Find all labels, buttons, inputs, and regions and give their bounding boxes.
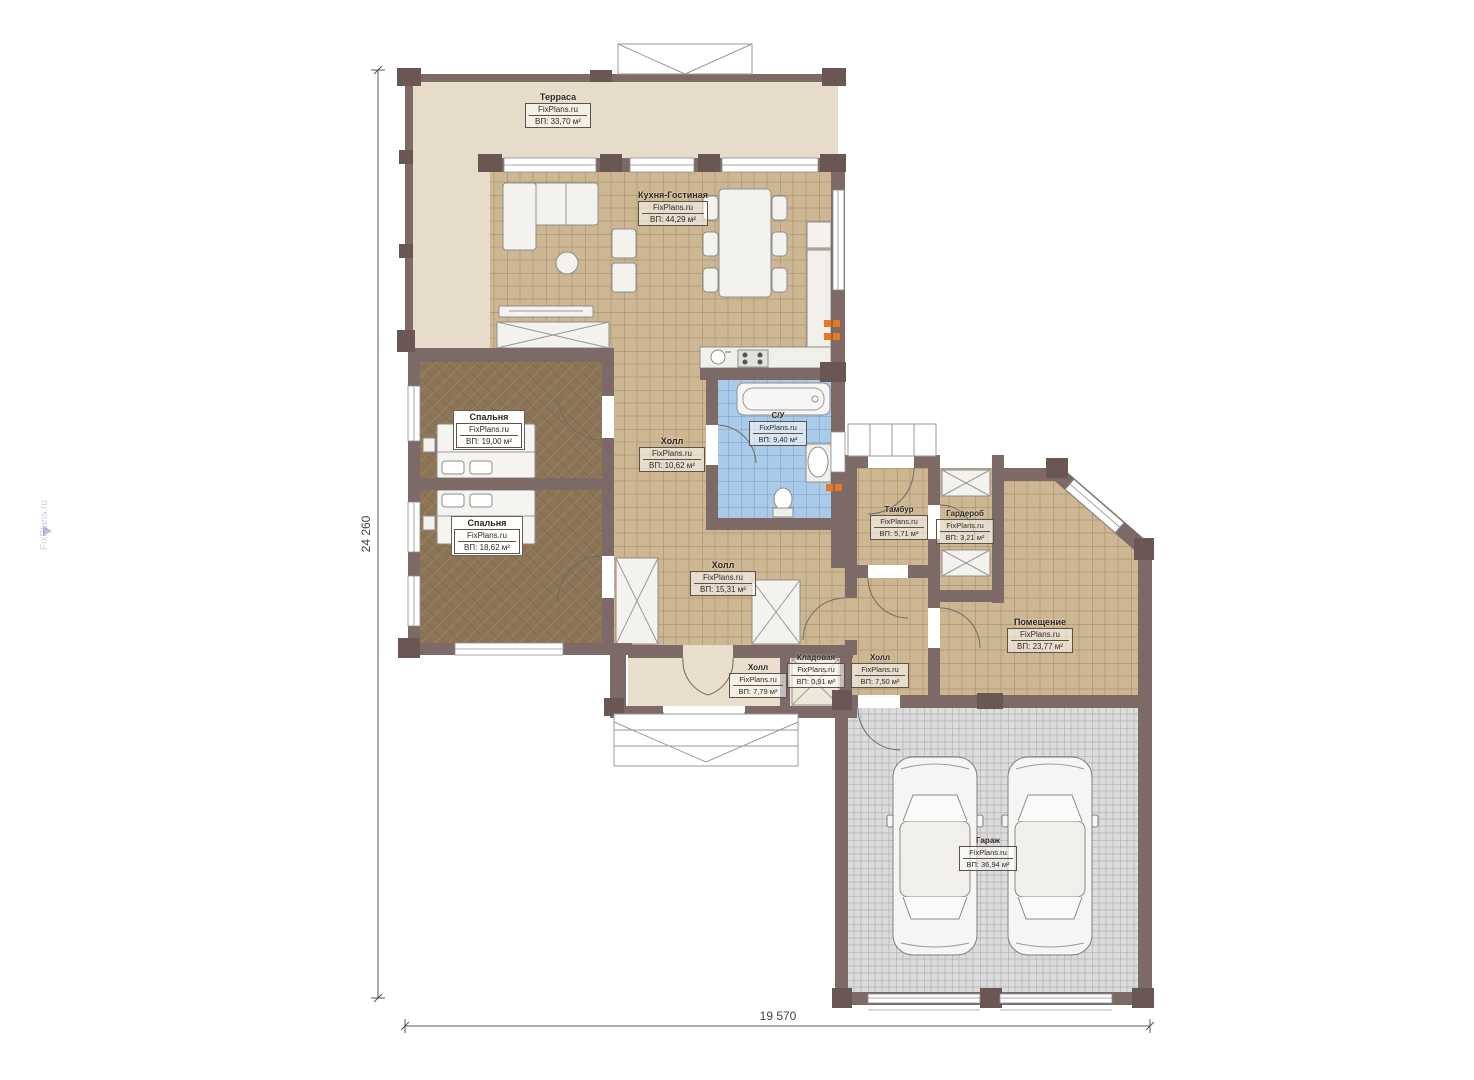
dimension-bottom-label: 19 570 xyxy=(760,1009,797,1023)
dining-chair xyxy=(703,232,718,256)
canopy xyxy=(618,44,752,74)
room-label-bedroom-1: Спальня FixPlans.ru ВП: 19,00 м² xyxy=(453,410,525,450)
room-label-hall-1531: Холл FixPlans.ru ВП: 15,31 м² xyxy=(690,560,756,596)
room-label-wardrobe: Гардероб FixPlans.ru ВП: 3,21 м² xyxy=(936,508,994,544)
stove xyxy=(738,350,768,367)
room-label-kitchen-living: Кухня-Гостиная FixPlans.ru ВП: 44,29 м² xyxy=(638,190,708,226)
toilet-tank xyxy=(773,508,793,517)
room-label-hall-779: Холл FixPlans.ru ВП: 7,79 м² xyxy=(729,662,787,698)
room-label-utility: Помещение FixPlans.ru ВП: 23,77 м² xyxy=(1007,617,1073,653)
dining-table xyxy=(719,189,771,297)
pouf xyxy=(612,229,636,258)
room-label-hall-1062: Холл FixPlans.ru ВП: 10,62 м² xyxy=(639,436,705,472)
dimension-left-label: 24 260 xyxy=(359,515,373,552)
room-label-bathroom: С/У FixPlans.ru ВП: 9,40 м² xyxy=(749,410,807,446)
floor-plan-drawing: 24 260 19 570 FixPlans.ru xyxy=(0,0,1474,1080)
bath-sink xyxy=(808,447,828,477)
floor-plan-page: 24 260 19 570 FixPlans.ru Терраса FixPla… xyxy=(0,0,1474,1080)
room-label-pantry: Кладовая FixPlans.ru ВП: 0,91 м² xyxy=(787,652,845,688)
pouf xyxy=(612,263,636,292)
side-watermark: FixPlans.ru xyxy=(39,500,50,550)
sofa-chaise xyxy=(503,183,536,250)
coffee-table xyxy=(556,252,578,274)
nightstand xyxy=(423,516,435,530)
toilet xyxy=(774,488,792,510)
room-label-terrace: Терраса FixPlans.ru ВП: 33,70 м² xyxy=(525,92,591,128)
front-porch xyxy=(614,714,798,766)
room-label-garage: Гараж FixPlans.ru ВП: 36,94 м² xyxy=(959,835,1017,871)
room-label-hall-750: Холл FixPlans.ru ВП: 7,50 м² xyxy=(851,652,909,688)
kitchen-counter-side xyxy=(807,250,831,347)
dining-chair xyxy=(772,196,787,220)
room-label-bedroom-2: Спальня FixPlans.ru ВП: 18,62 м² xyxy=(451,516,523,556)
dining-chair xyxy=(703,268,718,292)
nightstand xyxy=(423,438,435,452)
room-label-tambour: Тамбур FixPlans.ru ВП: 5,71 м² xyxy=(870,504,928,540)
dining-chair xyxy=(772,268,787,292)
dining-chair xyxy=(772,232,787,256)
fridge xyxy=(807,222,831,248)
kitchen-sink xyxy=(711,350,725,364)
